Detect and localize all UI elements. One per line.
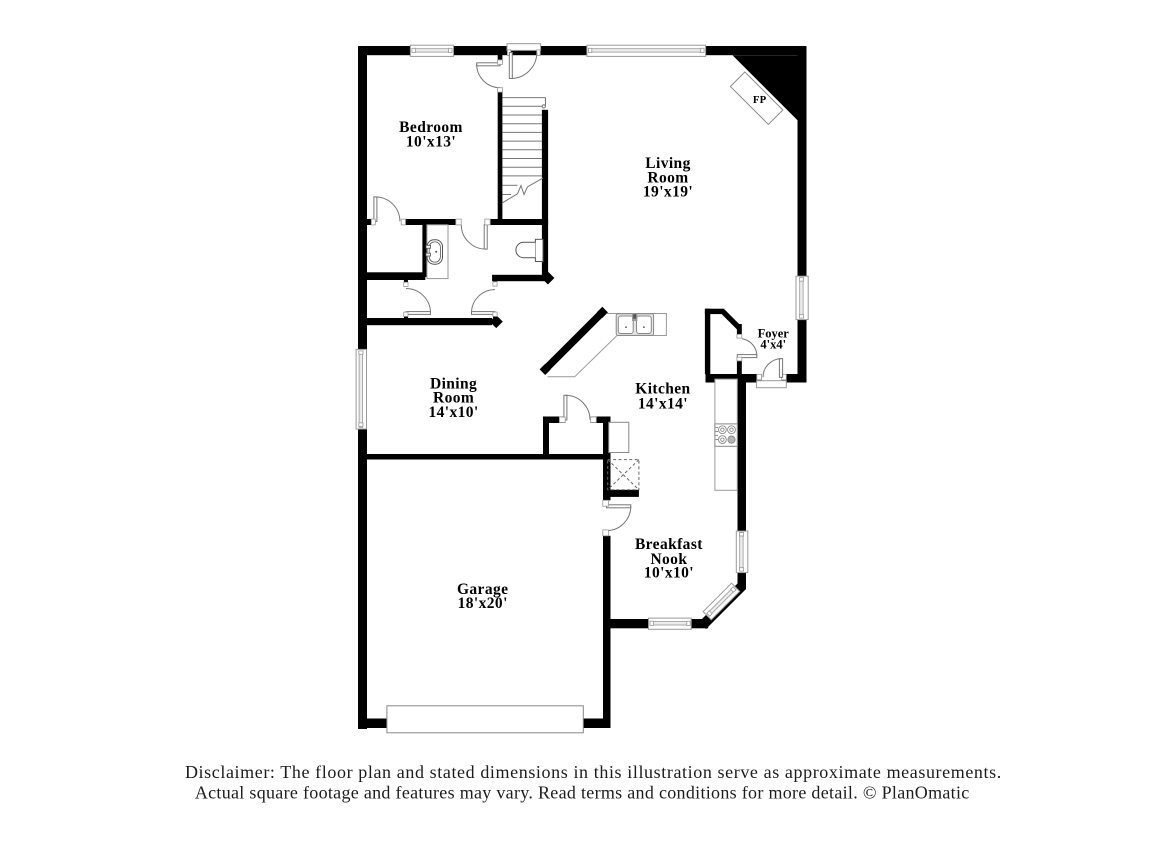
svg-text:10'x10': 10'x10' bbox=[644, 564, 694, 581]
svg-text:14'x14': 14'x14' bbox=[638, 396, 688, 413]
svg-text:10'x13': 10'x13' bbox=[406, 133, 456, 150]
svg-text:14'x10': 14'x10' bbox=[429, 404, 479, 421]
svg-text:4'x4': 4'x4' bbox=[760, 338, 786, 352]
svg-text:19'x19': 19'x19' bbox=[643, 184, 693, 201]
svg-text:FP: FP bbox=[753, 94, 767, 106]
svg-text:Actual square footage and feat: Actual square footage and features may v… bbox=[195, 782, 970, 802]
svg-text:18'x20': 18'x20' bbox=[458, 595, 508, 612]
svg-text:Disclaimer: The floor plan and: Disclaimer: The floor plan and stated di… bbox=[185, 762, 1002, 782]
